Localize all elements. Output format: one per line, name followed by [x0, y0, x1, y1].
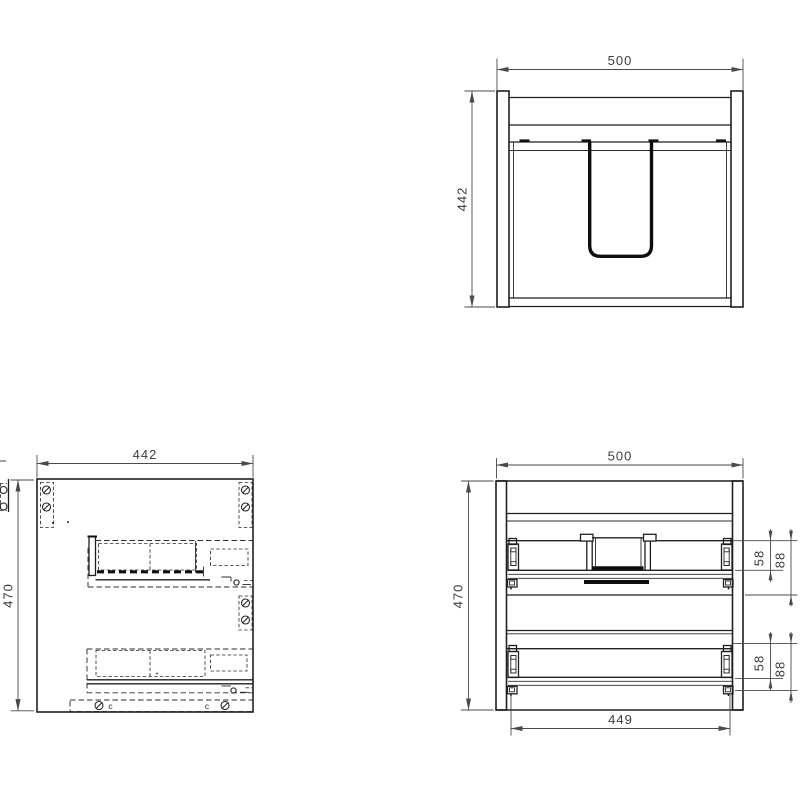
drawer-upper-front: [507, 534, 734, 589]
dim-label-88-upper: 88: [773, 552, 788, 568]
right-side-panel: [731, 91, 743, 307]
drawer-foot-left: [508, 580, 518, 590]
technical-drawing-page: 500 442: [0, 0, 800, 800]
screw-icon: [234, 580, 239, 585]
mounting-bracket-top-left: [41, 483, 54, 528]
screw-icon: [0, 487, 7, 494]
drawer-foot-right: [724, 686, 734, 696]
screw-icon: [231, 688, 236, 693]
slide-bracket-detail-upper: [222, 577, 253, 585]
dim-label-500-front: 500: [608, 53, 633, 68]
dim-width-442-side: 442: [37, 447, 253, 478]
drawer-runner-right: [722, 646, 733, 678]
dim-width-500-interior: 500: [497, 449, 744, 479]
view-front-exterior: 500 442: [455, 53, 744, 307]
screw-note-right: c: [205, 701, 210, 711]
drawer-runner-left: [508, 539, 519, 571]
left-side-panel: [496, 481, 507, 710]
dim-label-442-side: 442: [133, 447, 158, 462]
left-side-panel: [497, 91, 509, 307]
screw-icon: [0, 503, 7, 510]
drawer-lower-front: [507, 646, 734, 697]
cabinet-carcass-front: [497, 91, 743, 307]
siphon-recess: [581, 534, 657, 570]
dim-label-470-side: 470: [1, 583, 16, 608]
edge-partial-hardware: [0, 461, 9, 512]
drawer-foot-right: [724, 580, 734, 590]
dim-height-442-front: 442: [455, 91, 496, 307]
cabinet-technical-drawing: 500 442: [0, 0, 800, 800]
bottom-rail-dashed: c c: [70, 700, 253, 712]
slide-front-bar: [89, 537, 96, 576]
cabinet-carcass-interior: [496, 481, 743, 710]
right-side-panel: [733, 481, 744, 710]
drawer-runner-right: [722, 539, 733, 571]
view-front-interior: 500 470 449 58 88: [451, 449, 798, 736]
dim-height-470-interior: 470: [451, 481, 494, 710]
drawer-slide-lower: [87, 649, 253, 693]
dim-label-58-lower: 58: [752, 655, 767, 671]
side-panel-outline: [37, 479, 253, 712]
drawer-foot-left: [508, 686, 518, 696]
dim-label-500-interior: 500: [608, 449, 633, 464]
dim-height-470-side: 470: [1, 480, 35, 711]
dim-drawer-width-449: 449: [511, 695, 730, 736]
drawer-slide-upper: [88, 537, 254, 588]
dim-width-500-front: 500: [497, 53, 743, 90]
dim-label-449: 449: [608, 712, 633, 727]
slide-rear-bracket-hidden: [211, 549, 249, 566]
drawer-runner-left: [508, 646, 519, 678]
dim-label-58-upper: 58: [752, 550, 767, 566]
mounting-bracket-top-right: [239, 483, 252, 528]
slide-bracket-detail-lower: [222, 686, 254, 693]
dim-label-470-interior: 470: [451, 584, 466, 609]
dim-label-88-lower: 88: [773, 661, 788, 677]
slide-rear-bracket-hidden: [211, 655, 248, 671]
pilot-hole-dots: [52, 521, 69, 524]
siphon-cutout-u-shape: [590, 142, 652, 256]
view-side: c c 442 470: [0, 447, 253, 712]
mounting-bracket-mid-right: [239, 596, 252, 630]
screw-note-left: c: [108, 701, 113, 711]
dim-label-442-front: 442: [455, 187, 470, 212]
